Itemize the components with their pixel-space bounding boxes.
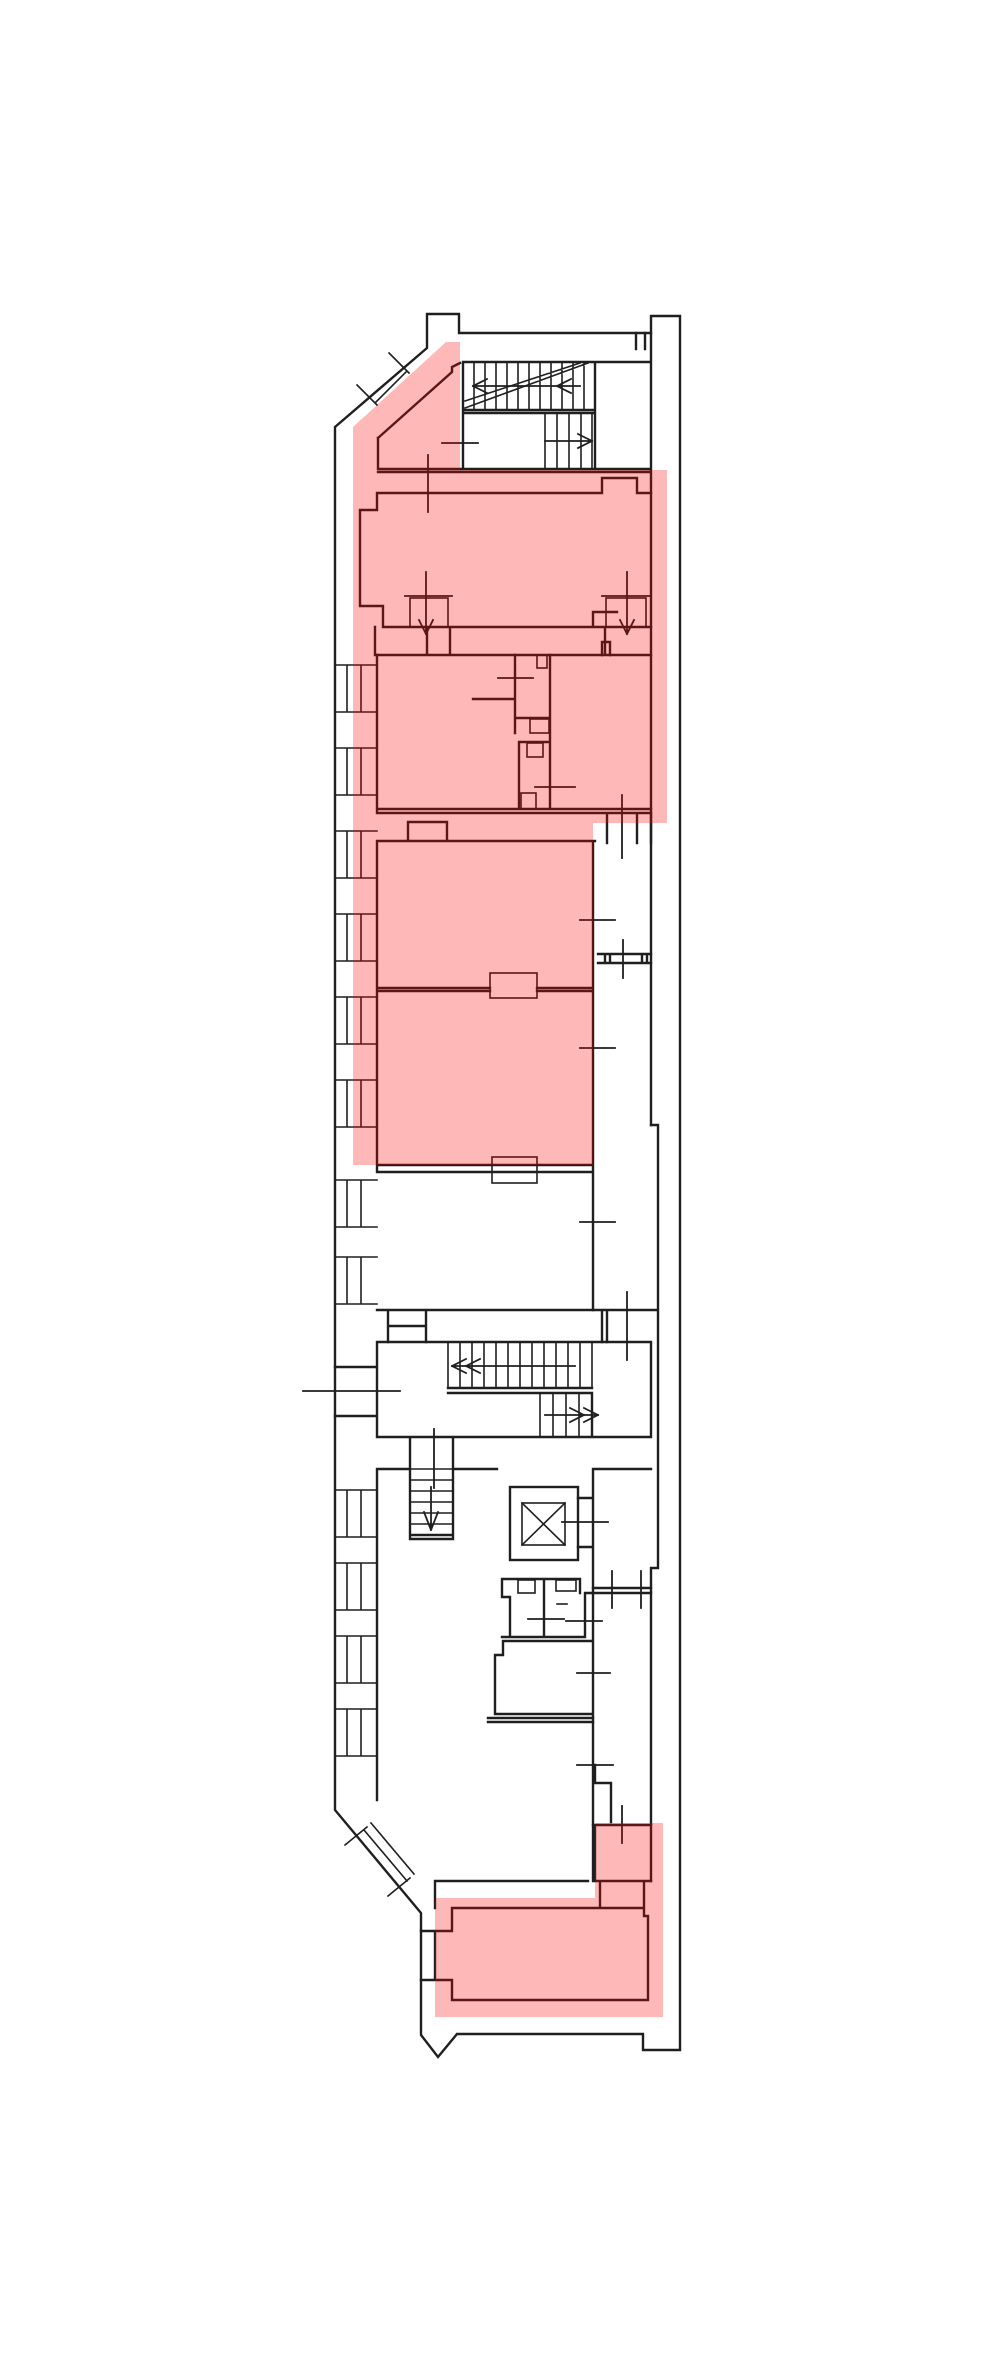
- floor-plan-page: [0, 0, 1000, 2370]
- cistern-fixture: [556, 1580, 576, 1591]
- elevator-icon: [510, 1487, 578, 1560]
- highlight-overlay: [353, 342, 667, 2017]
- basin-fixture: [518, 1580, 535, 1593]
- highlight-upper-unit: [353, 342, 667, 1165]
- highlight-lower-unit: [435, 1823, 663, 2017]
- bathroom-walls: [488, 1579, 593, 1722]
- floor-plan-svg: [0, 0, 1000, 2370]
- mid-stairwell-walls: [335, 1342, 651, 1437]
- top-stair-treads: [465, 362, 592, 469]
